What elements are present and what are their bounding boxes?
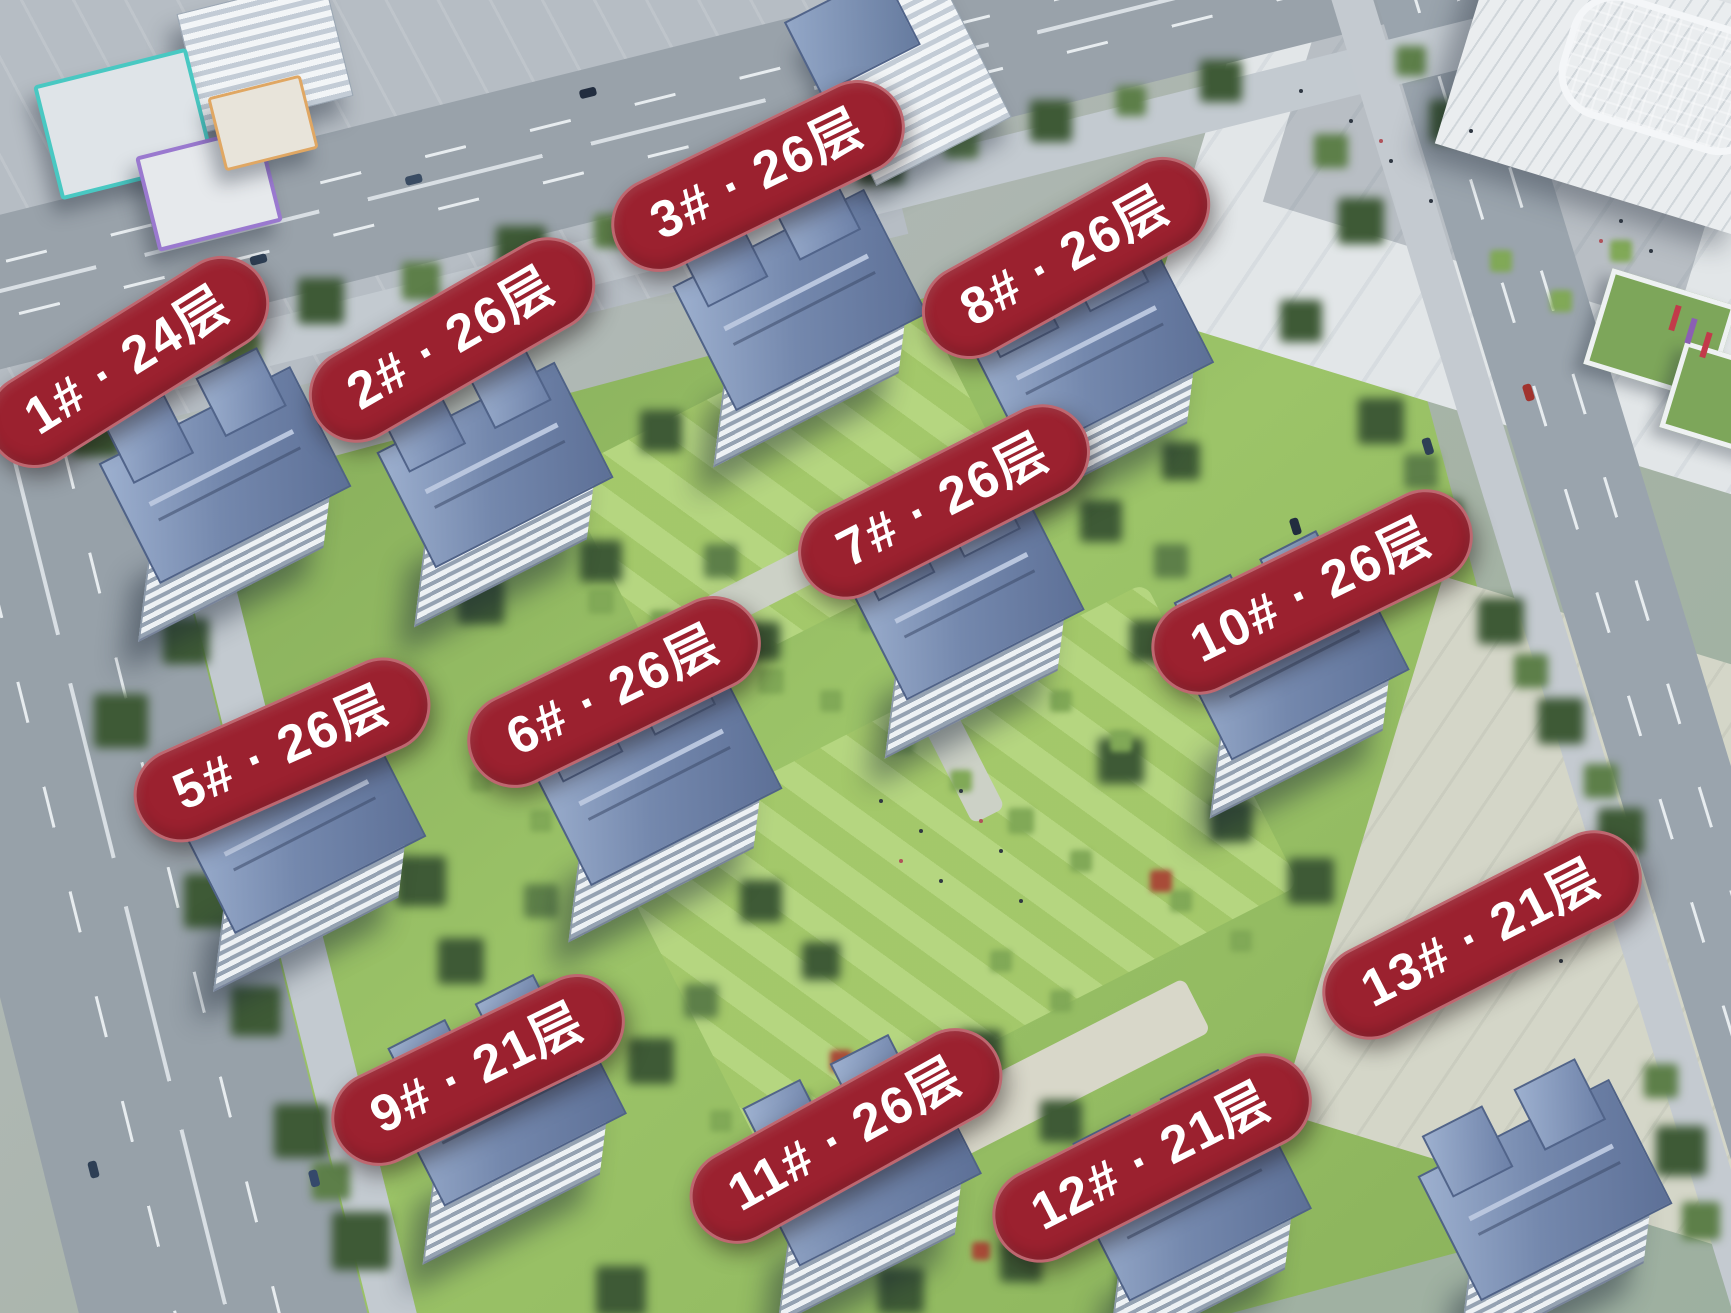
pedestrians (0, 0, 2, 2)
mall-glass-skylight (1547, 0, 1731, 167)
aerial-masterplan-render: 1# · 24层 2# · 26层 3# · 26层 5# · 26层 6# ·… (0, 0, 1731, 1313)
